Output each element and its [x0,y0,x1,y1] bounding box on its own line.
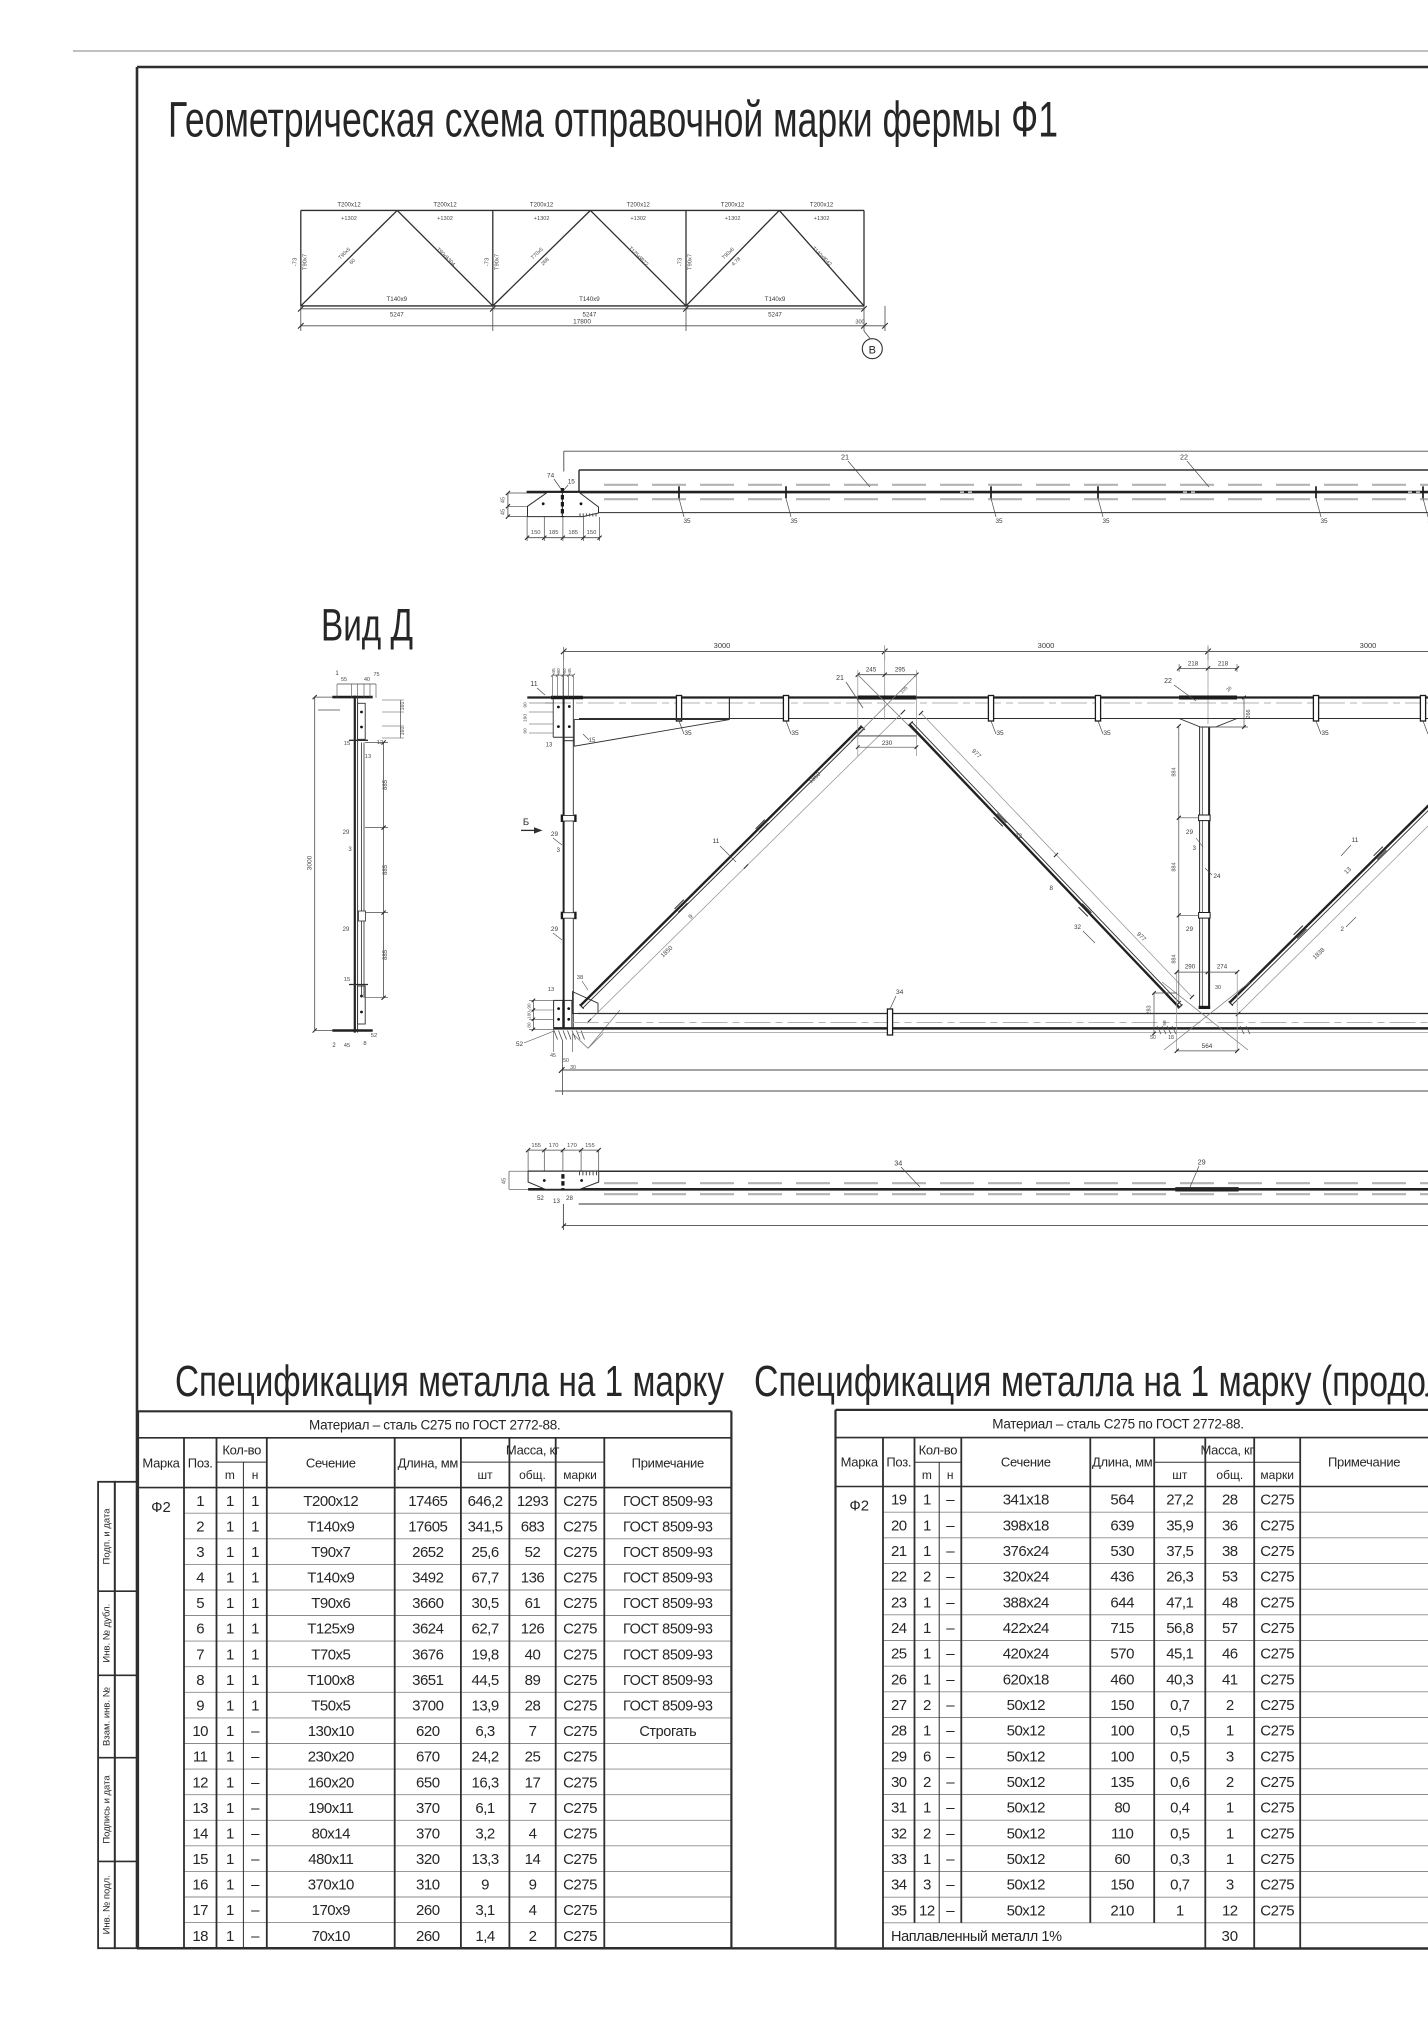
svg-text:0,6: 0,6 [1170,1774,1190,1791]
svg-text:3000: 3000 [714,641,731,650]
svg-text:58: 58 [1162,1020,1168,1026]
svg-text:34: 34 [891,1877,907,1894]
svg-text:45: 45 [567,668,573,674]
svg-text:14: 14 [525,1851,541,1868]
svg-text:Примечание: Примечание [632,1455,704,1470]
svg-text:50х12: 50х12 [1007,1902,1046,1919]
svg-text:50х12: 50х12 [1007,1851,1046,1868]
svg-text:35: 35 [1320,518,1328,525]
svg-text:Кол-во: Кол-во [919,1442,958,1457]
svg-text:Сечение: Сечение [306,1455,356,1470]
svg-text:21: 21 [841,453,849,462]
svg-text:3000: 3000 [1038,641,1055,650]
svg-text:1: 1 [226,1800,234,1817]
svg-text:283: 283 [1147,1005,1153,1014]
svg-text:-73: -73 [484,258,490,266]
svg-text:29: 29 [1198,1158,1206,1167]
svg-text:260: 260 [416,1928,440,1945]
svg-text:170: 170 [567,1143,577,1149]
svg-text:1: 1 [251,1698,259,1715]
svg-text:89: 89 [525,1672,541,1689]
svg-text:1: 1 [1226,1800,1234,1817]
svg-text:4: 4 [196,1570,204,1587]
svg-text:50х12: 50х12 [1007,1877,1046,1894]
svg-text:341,5: 341,5 [468,1518,503,1535]
svg-text:Т200х12: Т200х12 [337,203,361,209]
svg-text:Кол-во: Кол-во [222,1442,261,1457]
svg-text:С275: С275 [1260,1569,1294,1586]
svg-text:70х10: 70х10 [312,1928,351,1945]
svg-text:С275: С275 [563,1877,597,1894]
svg-text:62,7: 62,7 [471,1621,498,1638]
svg-text:17465: 17465 [408,1493,447,1510]
svg-text:Примечание: Примечание [1328,1455,1400,1470]
svg-text:32: 32 [891,1825,907,1842]
svg-text:30: 30 [1221,1928,1238,1945]
svg-text:341х18: 341х18 [1003,1492,1049,1509]
svg-text:С275: С275 [1260,1594,1294,1611]
svg-text:–: – [946,1851,955,1868]
svg-text:1: 1 [226,1774,234,1791]
svg-text:50х12: 50х12 [1007,1825,1046,1842]
svg-text:11: 11 [1352,837,1359,844]
svg-text:3651: 3651 [412,1672,444,1689]
svg-text:1: 1 [251,1570,259,1587]
svg-text:185: 185 [549,530,559,536]
svg-text:2: 2 [923,1697,931,1714]
svg-text:31: 31 [891,1800,907,1817]
svg-text:С275: С275 [1260,1825,1294,1842]
svg-text:2: 2 [1341,926,1345,933]
svg-text:С275: С275 [563,1595,597,1612]
svg-text:Т200х12: Т200х12 [721,203,745,209]
svg-text:885: 885 [383,864,389,875]
svg-text:С275: С275 [563,1544,597,1561]
svg-text:230х20: 230х20 [308,1749,354,1766]
svg-text:С275: С275 [563,1621,597,1638]
svg-text:135: 135 [1110,1774,1134,1791]
svg-text:170х9: 170х9 [312,1902,351,1919]
svg-text:4: 4 [529,1902,537,1919]
svg-text:27,2: 27,2 [1166,1492,1193,1509]
svg-text:1293: 1293 [517,1493,549,1510]
svg-text:45: 45 [344,1043,350,1049]
svg-text:13: 13 [553,1198,560,1205]
svg-text:28: 28 [891,1723,907,1740]
svg-text:52: 52 [525,1544,541,1561]
svg-text:19: 19 [891,1492,907,1509]
svg-text:1: 1 [923,1671,931,1688]
svg-text:–: – [946,1723,955,1740]
svg-text:1: 1 [226,1749,234,1766]
svg-text:Материал – сталь С275 по ГОСТ: Материал – сталь С275 по ГОСТ 2772-88. [309,1417,560,1432]
svg-text:С275: С275 [1260,1774,1294,1791]
svg-text:1: 1 [226,1826,234,1843]
svg-text:13,9: 13,9 [471,1698,498,1715]
svg-text:35: 35 [996,730,1004,737]
svg-text:ГОСТ 8509-93: ГОСТ 8509-93 [623,1699,713,1715]
svg-text:С275: С275 [563,1851,597,1868]
svg-text:310: 310 [416,1877,440,1894]
svg-text:36: 36 [1222,1517,1238,1534]
svg-text:17605: 17605 [408,1518,447,1535]
svg-text:683: 683 [521,1518,545,1535]
svg-text:190х11: 190х11 [308,1800,353,1817]
svg-text:11: 11 [530,681,537,688]
svg-text:55: 55 [341,677,347,683]
svg-text:100: 100 [526,1011,531,1019]
svg-text:2: 2 [1226,1774,1234,1791]
svg-text:12: 12 [377,740,383,746]
svg-text:1: 1 [923,1492,931,1509]
svg-text:320: 320 [416,1851,440,1868]
svg-text:С275: С275 [1260,1748,1294,1765]
svg-text:3: 3 [1226,1877,1234,1894]
svg-text:56,8: 56,8 [1166,1620,1193,1637]
svg-text:Т100х8: Т100х8 [307,1672,354,1689]
svg-text:+1302: +1302 [725,216,741,222]
svg-text:21: 21 [891,1543,907,1560]
svg-text:3492: 3492 [412,1570,444,1587]
svg-text:1: 1 [251,1595,259,1612]
svg-text:4: 4 [529,1826,537,1843]
svg-text:1: 1 [226,1672,234,1689]
svg-text:74: 74 [547,473,555,480]
svg-text:ГОСТ 8509-93: ГОСТ 8509-93 [623,1596,713,1612]
svg-text:100: 100 [1110,1748,1134,1765]
svg-text:17800: 17800 [573,319,591,326]
svg-text:12: 12 [192,1774,208,1791]
svg-text:С275: С275 [1260,1517,1294,1534]
svg-text:50: 50 [1150,1035,1156,1041]
svg-text:–: – [251,1749,260,1766]
svg-text:47,1: 47,1 [1166,1594,1193,1611]
svg-text:530: 530 [1110,1543,1134,1560]
svg-text:7: 7 [196,1646,204,1663]
svg-text:260: 260 [416,1902,440,1919]
svg-text:884: 884 [1171,862,1177,871]
svg-text:1: 1 [923,1723,931,1740]
svg-text:Инв. № дубл.: Инв. № дубл. [102,1604,113,1663]
svg-text:2: 2 [923,1825,931,1842]
svg-text:ГОСТ 8509-93: ГОСТ 8509-93 [623,1494,713,1510]
svg-text:16: 16 [192,1877,208,1894]
svg-text:–: – [251,1851,260,1868]
svg-text:1: 1 [923,1594,931,1611]
svg-text:С275: С275 [563,1518,597,1535]
svg-text:В: В [869,345,876,357]
svg-text:28: 28 [525,1698,541,1715]
svg-text:1: 1 [226,1877,234,1894]
svg-text:1: 1 [923,1851,931,1868]
svg-text:7: 7 [529,1800,537,1817]
svg-text:29: 29 [343,830,350,836]
svg-text:650: 650 [416,1774,440,1791]
svg-text:6,1: 6,1 [475,1800,495,1817]
svg-text:40: 40 [364,677,370,683]
svg-text:Т70х5: Т70х5 [311,1646,350,1663]
svg-text:1: 1 [923,1543,931,1560]
svg-text:27: 27 [891,1697,907,1714]
svg-text:13: 13 [546,743,553,749]
svg-text:29: 29 [1186,829,1194,836]
svg-text:1: 1 [226,1621,234,1638]
svg-text:35: 35 [1102,518,1110,525]
svg-text:3,2: 3,2 [475,1826,495,1843]
svg-text:Поз.: Поз. [886,1455,911,1470]
svg-text:Марка: Марка [841,1455,879,1470]
svg-text:+1302: +1302 [814,216,830,222]
svg-text:0,5: 0,5 [1170,1748,1190,1765]
svg-text:Б: Б [523,817,529,828]
svg-text:715: 715 [1110,1620,1134,1637]
svg-text:266: 266 [1246,709,1252,718]
svg-text:Длина, мм: Длина, мм [398,1455,459,1470]
svg-text:–: – [946,1825,955,1842]
svg-text:300: 300 [855,320,864,326]
svg-text:3000: 3000 [307,855,314,870]
svg-text:45: 45 [501,509,507,515]
svg-text:m: m [922,1468,932,1482]
svg-text:564: 564 [1110,1492,1134,1509]
svg-text:1: 1 [251,1493,259,1510]
svg-text:29: 29 [551,831,559,838]
svg-text:Инв. № подл.: Инв. № подл. [102,1875,113,1934]
svg-text:С275: С275 [1260,1723,1294,1740]
svg-text:С275: С275 [563,1493,597,1510]
svg-text:Поз.: Поз. [188,1455,213,1470]
svg-text:52: 52 [537,1195,544,1202]
svg-text:370: 370 [416,1826,440,1843]
svg-text:320х24: 320х24 [1003,1569,1049,1586]
svg-text:9: 9 [481,1877,489,1894]
svg-text:С275: С275 [1260,1902,1294,1919]
svg-text:155: 155 [531,1143,541,1149]
svg-text:С275: С275 [563,1902,597,1919]
svg-text:С275: С275 [1260,1646,1294,1663]
svg-text:9: 9 [529,1877,537,1894]
svg-text:С275: С275 [1260,1620,1294,1637]
svg-text:67,7: 67,7 [471,1570,498,1587]
svg-text:436: 436 [1110,1569,1134,1586]
svg-text:–: – [946,1594,955,1611]
svg-text:160х20: 160х20 [308,1774,354,1791]
svg-text:Геометрическая схема отправочн: Геометрическая схема отправочной марки ф… [168,92,1058,148]
svg-text:885: 885 [383,779,389,790]
svg-text:646,2: 646,2 [468,1493,503,1510]
svg-text:ГОСТ 8509-93: ГОСТ 8509-93 [623,1519,713,1535]
svg-text:–: – [946,1697,955,1714]
svg-text:ГОСТ 8509-93: ГОСТ 8509-93 [623,1545,713,1561]
svg-text:150: 150 [1110,1877,1134,1894]
svg-text:17: 17 [192,1902,208,1919]
svg-text:245: 245 [866,667,877,674]
svg-text:5247: 5247 [390,312,404,319]
svg-text:3: 3 [1226,1748,1234,1765]
svg-text:110: 110 [1111,1825,1134,1842]
svg-text:50х12: 50х12 [1007,1800,1046,1817]
svg-text:0,3: 0,3 [1170,1851,1190,1868]
svg-text:Взам. инв. №: Взам. инв. № [102,1687,113,1746]
svg-text:29: 29 [1186,926,1194,933]
svg-text:15: 15 [192,1851,208,1868]
svg-text:3700: 3700 [412,1698,444,1715]
svg-text:50х12: 50х12 [1007,1723,1046,1740]
svg-text:2: 2 [196,1518,204,1535]
svg-text:Т140х9: Т140х9 [307,1570,354,1587]
svg-text:1: 1 [226,1646,234,1663]
svg-text:422х24: 422х24 [1003,1620,1049,1637]
svg-text:100: 100 [1110,1723,1134,1740]
svg-text:50х12: 50х12 [1007,1697,1046,1714]
svg-text:2: 2 [923,1569,931,1586]
svg-text:38: 38 [1222,1543,1238,1560]
svg-text:28: 28 [566,1195,573,1202]
svg-text:15: 15 [344,741,350,747]
svg-text:С275: С275 [1260,1492,1294,1509]
svg-text:Т200х12: Т200х12 [530,203,554,209]
svg-text:–: – [946,1877,955,1894]
svg-text:–: – [946,1543,955,1560]
svg-text:13: 13 [365,754,371,760]
svg-text:Т200х12: Т200х12 [810,203,834,209]
svg-text:136: 136 [521,1570,545,1587]
svg-text:m: m [225,1468,235,1482]
svg-text:–: – [251,1800,260,1817]
svg-text:460: 460 [1110,1671,1134,1688]
svg-text:2: 2 [529,1928,537,1945]
svg-text:52: 52 [371,1033,377,1039]
svg-text:2652: 2652 [412,1544,444,1561]
svg-text:–: – [946,1492,955,1509]
svg-text:35: 35 [891,1902,907,1919]
svg-text:1: 1 [196,1493,204,1510]
svg-text:Строгать: Строгать [639,1724,696,1740]
svg-text:Материал – сталь С275 по ГОСТ: Материал – сталь С275 по ГОСТ 2772-88. [992,1417,1243,1432]
svg-text:44,5: 44,5 [471,1672,498,1689]
svg-text:Т125х9: Т125х9 [307,1621,354,1638]
svg-text:150: 150 [587,530,597,536]
svg-text:3660: 3660 [412,1595,444,1612]
svg-text:90: 90 [556,668,562,674]
svg-text:8: 8 [363,1041,366,1047]
svg-text:С275: С275 [563,1774,597,1791]
svg-text:35: 35 [1321,730,1329,737]
svg-text:23: 23 [891,1594,907,1611]
svg-text:150: 150 [1110,1697,1134,1714]
svg-text:32: 32 [1074,924,1081,931]
svg-text:Спецификация металла на 1 марк: Спецификация металла на 1 марку (продолж… [754,1357,1428,1406]
svg-text:1: 1 [226,1595,234,1612]
svg-text:35,9: 35,9 [1166,1517,1193,1534]
svg-text:90: 90 [523,728,529,734]
svg-text:170: 170 [549,1143,559,1149]
svg-text:1: 1 [923,1800,931,1817]
svg-text:–: – [946,1620,955,1637]
svg-text:24,2: 24,2 [471,1749,498,1766]
svg-text:22: 22 [1164,678,1172,685]
svg-text:–: – [251,1877,260,1894]
svg-text:24: 24 [1214,873,1221,880]
svg-text:–: – [946,1774,955,1791]
svg-text:1: 1 [251,1621,259,1638]
svg-text:570: 570 [1110,1646,1134,1663]
svg-text:+1302: +1302 [630,216,646,222]
svg-text:Т90х7: Т90х7 [311,1544,350,1561]
svg-text:45: 45 [550,1053,556,1059]
svg-text:52: 52 [516,1041,524,1048]
svg-text:1,4: 1,4 [475,1928,495,1945]
svg-text:–: – [251,1774,260,1791]
svg-text:1: 1 [226,1902,234,1919]
svg-text:Т90х6: Т90х6 [311,1595,350,1612]
svg-text:1: 1 [251,1672,259,1689]
svg-text:-73: -73 [678,258,684,266]
svg-text:11: 11 [713,838,720,845]
svg-text:90: 90 [523,702,529,708]
svg-text:Длина, мм: Длина, мм [1092,1455,1153,1470]
svg-text:50х12: 50х12 [1007,1748,1046,1765]
svg-text:Т50х5: Т50х5 [311,1698,350,1715]
svg-text:3676: 3676 [412,1646,444,1663]
svg-text:15: 15 [589,738,596,744]
svg-text:13: 13 [548,987,554,993]
svg-text:45: 45 [501,497,507,503]
svg-text:230: 230 [882,740,893,747]
svg-text:0,4: 0,4 [1170,1800,1190,1817]
svg-text:35: 35 [1103,730,1111,737]
svg-text:1: 1 [1226,1851,1234,1868]
svg-text:80: 80 [526,1022,531,1028]
svg-text:274: 274 [1217,964,1228,971]
svg-text:–: – [251,1928,260,1945]
svg-text:155: 155 [585,1143,595,1149]
svg-text:376х24: 376х24 [1003,1543,1049,1560]
svg-text:Т200х12: Т200х12 [433,203,457,209]
svg-text:19,8: 19,8 [471,1646,498,1663]
svg-text:1: 1 [226,1723,234,1740]
svg-text:Спецификация металла на 1 марк: Спецификация металла на 1 марку [175,1357,724,1406]
svg-text:–: – [251,1723,260,1740]
svg-text:–: – [251,1826,260,1843]
svg-text:29: 29 [551,926,559,933]
svg-text:–: – [946,1748,955,1765]
svg-text:30: 30 [891,1774,907,1791]
svg-text:Т90х7: Т90х7 [302,254,308,270]
svg-text:35: 35 [684,730,692,737]
svg-text:1: 1 [1226,1825,1234,1842]
svg-text:Т200х12: Т200х12 [627,203,651,209]
svg-text:25,6: 25,6 [471,1544,498,1561]
svg-text:Наплавленный металл 1%: Наплавленный металл 1% [891,1929,1062,1945]
svg-text:160: 160 [400,727,406,736]
svg-text:Вид Д: Вид Д [321,600,413,651]
svg-text:С275: С275 [1260,1800,1294,1817]
svg-text:644: 644 [1110,1594,1134,1611]
svg-text:12: 12 [1222,1902,1238,1919]
svg-text:80х14: 80х14 [312,1826,351,1843]
svg-text:18: 18 [192,1928,208,1945]
svg-text:45: 45 [502,1178,508,1184]
svg-text:Т200х12: Т200х12 [303,1493,358,1510]
svg-text:35: 35 [791,730,799,737]
svg-text:С275: С275 [1260,1543,1294,1560]
svg-text:26: 26 [891,1671,907,1688]
svg-text:1: 1 [226,1544,234,1561]
svg-text:–: – [946,1800,955,1817]
svg-text:общ.: общ. [1216,1468,1243,1482]
svg-text:0,5: 0,5 [1170,1723,1190,1740]
